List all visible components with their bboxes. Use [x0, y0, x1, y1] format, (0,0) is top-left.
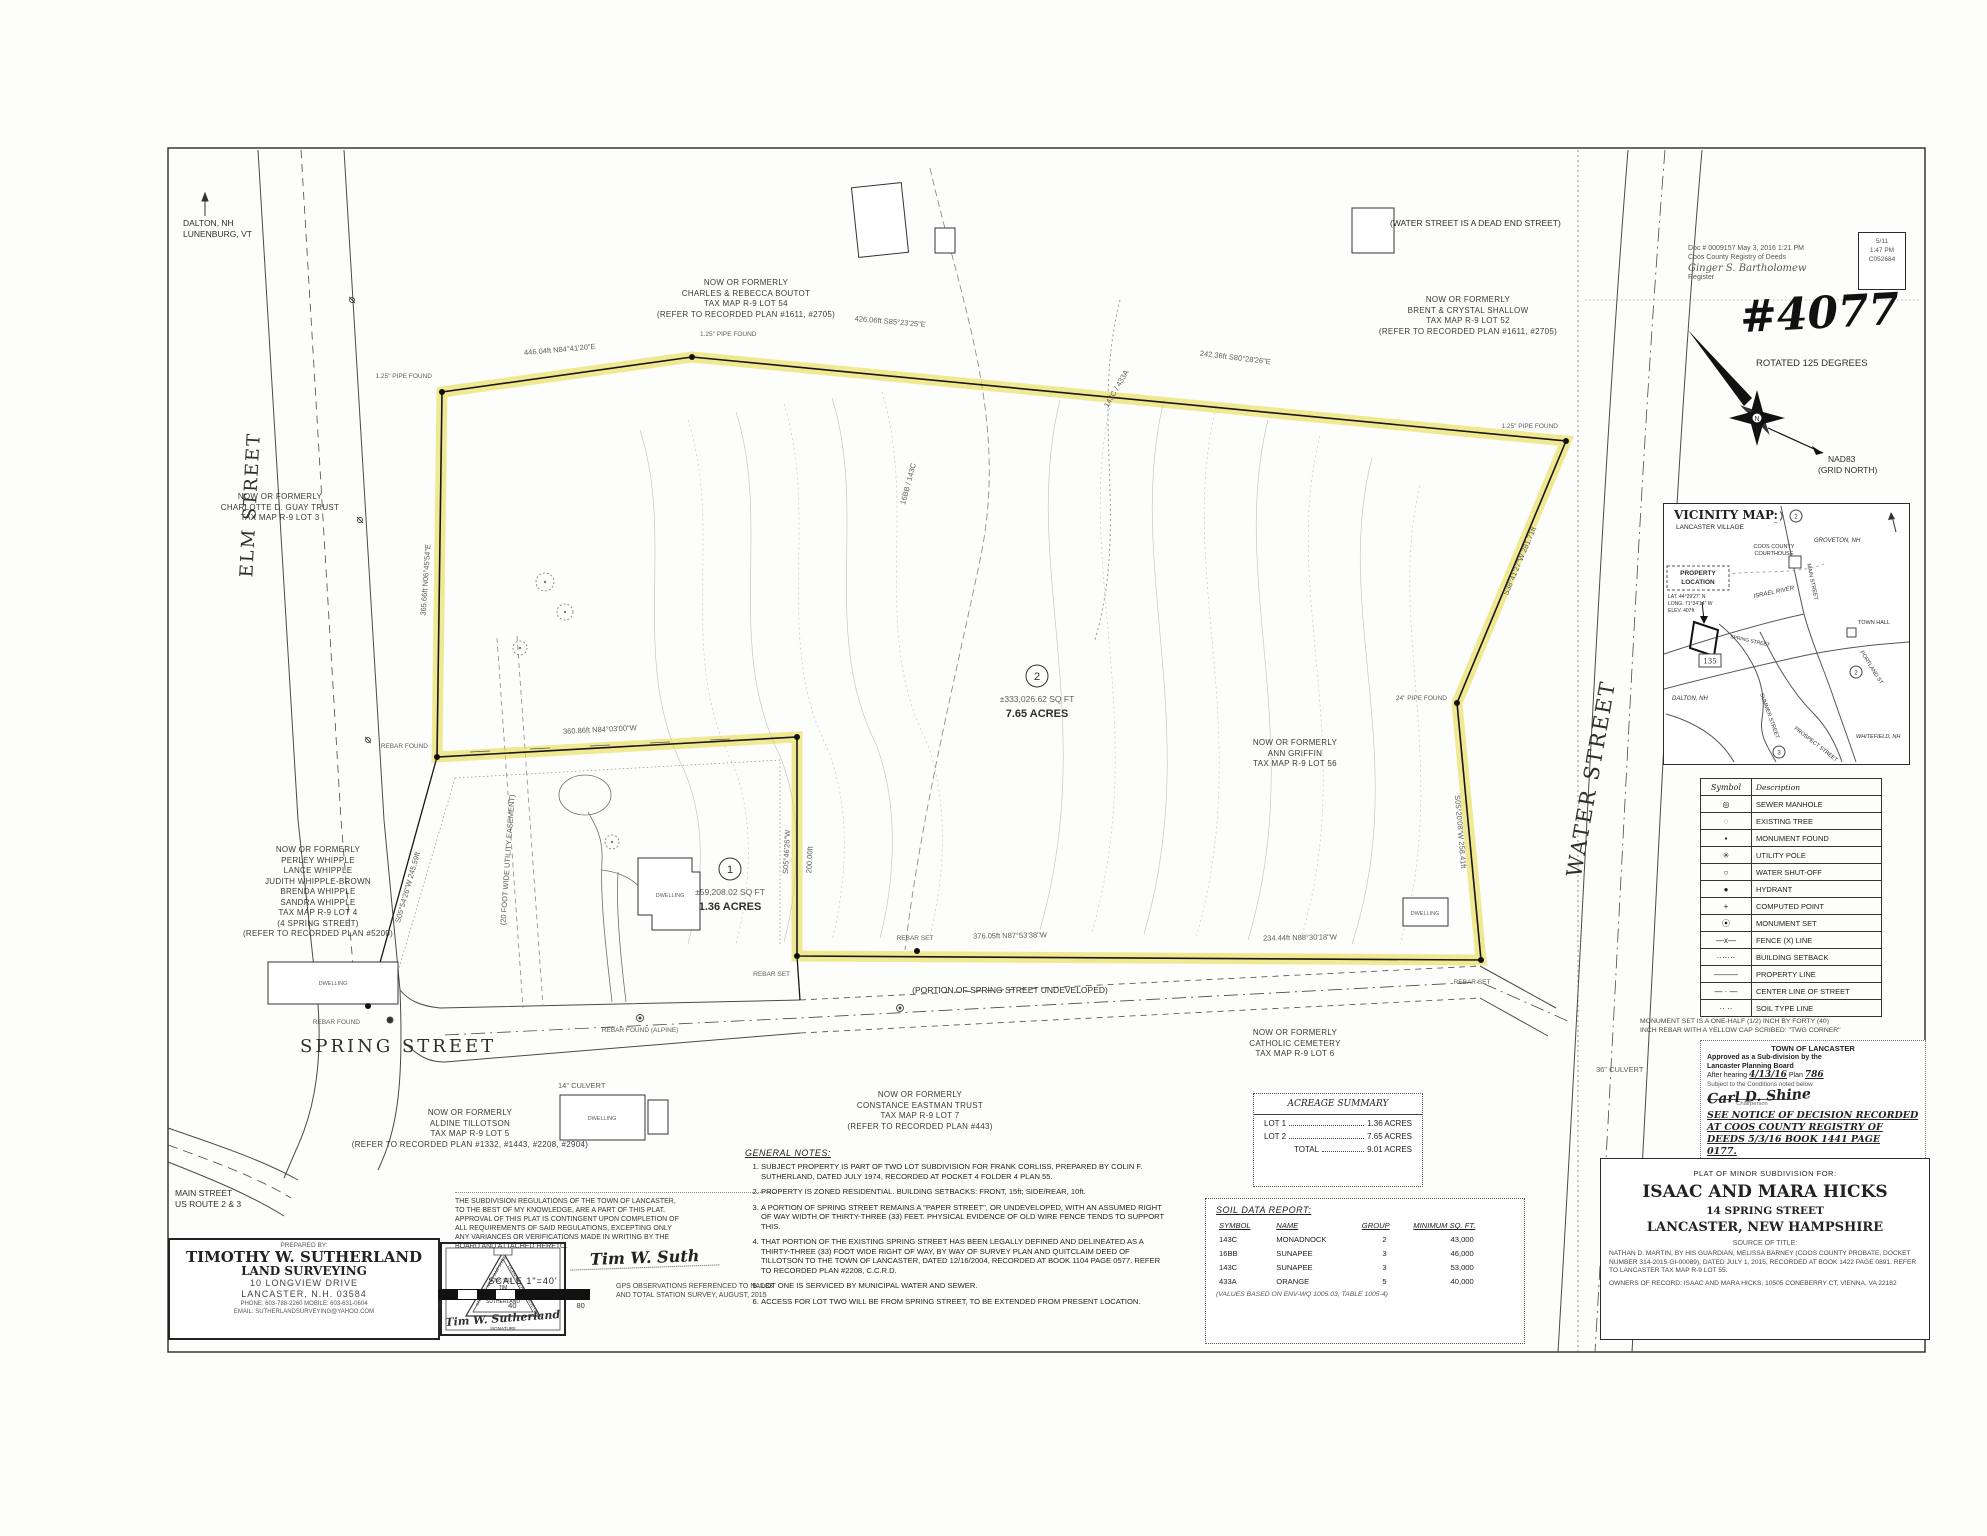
soil-row: 16BBSUNAPEE346,000: [1216, 1246, 1514, 1260]
stamp-registry-line: Coos County Registry of Deeds: [1688, 253, 1858, 262]
text-line: NOW OR FORMERLY: [1195, 1028, 1395, 1039]
sheet-number: #4077: [1739, 284, 1901, 343]
legend-description: FENCE (X) LINE: [1752, 932, 1882, 949]
text-line: TAX MAP R-9 LOT 7: [800, 1111, 1040, 1122]
main-street-label-2: US ROUTE 2 & 3: [175, 1199, 241, 1209]
title-town: LANCASTER, NEW HAMPSHIRE: [1609, 1220, 1921, 1235]
legend-row: ———PROPERTY LINE: [1701, 966, 1882, 983]
soil-report: SOIL DATA REPORT: SYMBOLNAMEGROUPMINIMUM…: [1205, 1198, 1525, 1344]
soil-cell: 2: [1359, 1232, 1411, 1246]
legend-symbol: ●: [1701, 881, 1752, 898]
text-line: (4 SPRING STREET): [218, 919, 418, 930]
stamp-box: 5/111:47 PMC052684: [1858, 232, 1906, 290]
acreage-row: LOT 27.65 ACRES: [1264, 1132, 1412, 1141]
soil-cell: 3: [1359, 1246, 1411, 1260]
soil-type-lines: [905, 168, 1120, 950]
text-line: SANDRA WHIPPLE: [218, 898, 418, 909]
surveyor-business: LAND SURVEYING: [172, 1265, 436, 1278]
svg-text:COURTHOUSE: COURTHOUSE: [1754, 551, 1793, 557]
vicinity-courthouse-label: COOS COUNTY: [1754, 544, 1795, 550]
rotation-note: ROTATED 125 DEGREES: [1756, 358, 1868, 369]
boutot-shed: [935, 228, 955, 253]
bearing-label: S05°46'26"W: [781, 829, 792, 875]
soil-header: MINIMUM SQ. FT.: [1410, 1219, 1514, 1232]
legend-header-desc: Description: [1752, 779, 1882, 796]
bearing-label: 426.06ft S85°23'25"E: [854, 314, 926, 329]
legend-row: ◎SEWER MANHOLE: [1701, 796, 1882, 813]
soil-header: NAME: [1273, 1219, 1359, 1232]
soil-cell: 53,000: [1410, 1260, 1514, 1274]
text-line: AT COOS COUNTY REGISTRY OF: [1707, 1122, 1919, 1134]
vicinity-groveton: GROVETON, NH: [1814, 538, 1861, 544]
boutot-building: [851, 183, 908, 258]
vicinity-spring-st: SPRING STREET: [1730, 634, 1771, 648]
parcel-label-boutot: NOW OR FORMERLYCHARLES & REBECCA BOUTOTT…: [630, 278, 862, 320]
text-line: CHARLES & REBECCA BOUTOT: [630, 289, 862, 300]
text-line: TAX MAP R-9 LOT 54: [630, 299, 862, 310]
svg-text:135: 135: [1703, 658, 1716, 666]
vicinity-subtitle: LANCASTER VILLAGE: [1674, 524, 1746, 531]
svg-text:1.36 ACRES: 1.36 ACRES: [699, 901, 762, 913]
soil-cell: 5: [1359, 1274, 1411, 1288]
vicinity-property-label: PROPERTY: [1680, 570, 1716, 577]
culvert-east-label: 36" CULVERT: [1596, 1065, 1644, 1074]
legend-symbol: ▪: [1701, 830, 1752, 847]
title-source-text: NATHAN D. MARTIN, BY HIS GUARDIAN, MELIS…: [1609, 1250, 1921, 1276]
soil-header: GROUP: [1359, 1219, 1411, 1232]
vicinity-town-hall-label: TOWN HALL: [1858, 620, 1890, 626]
text-line: ANN GRIFFIN: [1195, 749, 1395, 760]
lunenburg-label: LUNENBURG, VT: [183, 229, 252, 239]
water-street-label: WATER STREET: [1562, 679, 1620, 879]
parcel-label-shallow: NOW OR FORMERLYBRENT & CRYSTAL SHALLOWTA…: [1352, 295, 1584, 337]
text-line: PERLEY WHIPPLE: [218, 856, 418, 867]
soil-cell: SUNAPEE: [1273, 1246, 1359, 1260]
text-line: TAX MAP R-9 LOT 5: [300, 1129, 640, 1140]
monument-note-line1: MONUMENT SET IS A ONE-HALF (1/2) INCH BY…: [1640, 1018, 1920, 1027]
approval-town: TOWN OF LANCASTER: [1707, 1044, 1919, 1053]
text-line: NOW OR FORMERLY: [180, 492, 380, 503]
utility-symbols: [349, 297, 904, 1023]
stamp-signature: Ginger S. Bartholomew: [1688, 264, 1858, 273]
bearing-label: 446.04ft N84°41'20"E: [524, 342, 596, 357]
legend-description: UTILITY POLE: [1752, 847, 1882, 864]
parcel-label-whipple: NOW OR FORMERLYPERLEY WHIPPLELANCE WHIPP…: [218, 845, 418, 940]
contour-lines: [640, 392, 1421, 944]
bearing-label: 234.44ft N88°30'18"W: [1263, 932, 1338, 942]
nad83-label: NAD83: [1828, 454, 1856, 464]
text-line: TAX MAP R-9 LOT 4: [218, 908, 418, 919]
acreage-title: ACREAGE SUMMARY: [1254, 1094, 1422, 1115]
text-line: BRENDA WHIPPLE: [218, 887, 418, 898]
recording-stamp: Doc # 0009157 May 3, 2016 1:21 PM Coos C…: [1688, 244, 1858, 282]
soil-report-title: SOIL DATA REPORT:: [1216, 1205, 1514, 1215]
general-notes: GENERAL NOTES: SUBJECT PROPERTY IS PART …: [745, 1148, 1165, 1312]
legend-description: EXISTING TREE: [1752, 813, 1882, 830]
text-line: 5/11: [1859, 237, 1905, 246]
legend-description: MONUMENT FOUND: [1752, 830, 1882, 847]
soil-footnote: (VALUES BASED ON ENV-WQ 1005.03, TABLE 1…: [1216, 1291, 1514, 1298]
legend-symbol: — · —: [1701, 983, 1752, 1000]
legend-row: ·· ··SOIL TYPE LINE: [1701, 1000, 1882, 1017]
svg-text:2: 2: [1034, 671, 1040, 683]
soil-cell: 40,000: [1410, 1274, 1514, 1288]
parcel-label-cemetery: NOW OR FORMERLYCATHOLIC CEMETERYTAX MAP …: [1195, 1028, 1395, 1060]
parcel-label-griffin: NOW OR FORMERLYANN GRIFFINTAX MAP R-9 LO…: [1195, 738, 1395, 770]
monument-markers: [365, 354, 1569, 1009]
legend-description: COMPUTED POINT: [1752, 898, 1882, 915]
vicinity-prospect: PROSPECT STREET: [1793, 726, 1839, 764]
plat-sheet: N ELM STREET WATER STREET SPRING STREET …: [0, 0, 1987, 1536]
easement-label: (20 FOOT WIDE UTILITY EASEMENT): [498, 794, 516, 926]
svg-text:±59,208.02 SQ FT: ±59,208.02 SQ FT: [695, 887, 765, 897]
surveyor-address-1: 10 LONGVIEW DRIVE: [172, 1278, 436, 1289]
bearing-label: 365.66ft N06°45'54"E: [419, 544, 433, 616]
vicinity-river-label: ISRAEL RIVER: [1753, 585, 1795, 600]
approval-handwritten-note: SEE NOTICE OF DECISION RECORDEDAT COOS C…: [1707, 1110, 1919, 1158]
vicinity-main-street: MAIN STREET: [1805, 563, 1819, 601]
approval-hearing-date: 4/13/16: [1749, 1070, 1787, 1080]
acreage-cell: 7.65 ACRES: [1367, 1132, 1412, 1141]
monument-label-mid: REBAR FOUND (ALPINE): [602, 1027, 679, 1034]
legend-symbol: ·· ··: [1701, 1000, 1752, 1017]
vicinity-map: PROPERTY LOCATION LAT. 44°29'27" N LONG.…: [1663, 503, 1910, 765]
parcel-label-guay: NOW OR FORMERLYCHARLOTTE D. GUAY TRUSTTA…: [180, 492, 380, 524]
text-line: NOW OR FORMERLY: [630, 278, 862, 289]
title-address: 14 SPRING STREET: [1609, 1205, 1921, 1217]
soil-cell: 3: [1359, 1260, 1411, 1274]
approval-hearing-line: After hearing 4/13/16 Plan 786: [1707, 1071, 1919, 1080]
vicinity-courthouse: [1789, 556, 1801, 568]
text-line: TO THE BEST OF MY KNOWLEDGE, ARE A PART …: [455, 1206, 775, 1215]
legend-symbol: —x—: [1701, 932, 1752, 949]
dead-end-note: (WATER STREET IS A DEAD END STREET): [1390, 218, 1561, 228]
general-notes-list: SUBJECT PROPERTY IS PART OF TWO LOT SUBD…: [745, 1162, 1165, 1306]
surveyor-phone: PHONE: 603-788-2260 MOBILE: 603-631-0604: [172, 1300, 436, 1308]
soil-row: 143CSUNAPEE353,000: [1216, 1260, 1514, 1274]
text-line: SEE NOTICE OF DECISION RECORDED: [1707, 1110, 1919, 1122]
dwelling-label: DWELLING: [656, 893, 685, 899]
certification-block: THE SUBDIVISION REGULATIONS OF THE TOWN …: [455, 1192, 775, 1251]
text-line: TAX MAP R-9 LOT 52: [1352, 316, 1584, 327]
text-line: ANY VARIANCES OR VERIFICATIONS MADE IN W…: [455, 1233, 775, 1242]
legend-row: ▪MONUMENT FOUND: [1701, 830, 1882, 847]
driveway: [559, 775, 640, 1002]
legend: Symbol Description ◎SEWER MANHOLE◌EXISTI…: [1700, 778, 1882, 1017]
surveyor-name: TIMOTHY W. SUTHERLAND: [172, 1249, 436, 1265]
bearing-label: 242.36ft S80°28'26"E: [1199, 349, 1271, 367]
tillotson-shed: [648, 1100, 668, 1134]
title-owner-name: ISAAC AND MARA HICKS: [1609, 1182, 1921, 1202]
soil-header: SYMBOL: [1216, 1219, 1273, 1232]
state-line-arrow: [202, 193, 208, 216]
legend-symbol: +: [1701, 898, 1752, 915]
monument-label-i: REBAR FOUND: [381, 743, 429, 750]
title-kicker: PLAT OF MINOR SUBDIVISION FOR:: [1609, 1169, 1921, 1178]
legend-description: HYDRANT: [1752, 881, 1882, 898]
legend-symbol: ———: [1701, 966, 1752, 983]
text-line: C052684: [1859, 255, 1905, 264]
text-line: NOW OR FORMERLY: [1195, 738, 1395, 749]
approval-block: TOWN OF LANCASTER Approved as a Sub-divi…: [1700, 1040, 1926, 1166]
utility-easement-lines: [497, 636, 543, 1008]
soil-cell: 143C: [1216, 1232, 1273, 1246]
vicinity-property-polygon: [1690, 622, 1718, 656]
text-line: THE SUBDIVISION REGULATIONS OF THE TOWN …: [455, 1197, 775, 1206]
scale-label: SCALE 1"=40': [438, 1276, 608, 1286]
bearing-label: 360.86ft N84°03'00"W: [563, 723, 638, 736]
text-line: LANCE WHIPPLE: [218, 866, 418, 877]
legend-description: PROPERTY LINE: [1752, 966, 1882, 983]
general-note-item: PROPERTY IS ZONED RESIDENTIAL. BUILDING …: [761, 1187, 1165, 1197]
soil-label-1: 16BB / 143C: [898, 462, 918, 506]
culvert-west-label: 14" CULVERT: [558, 1081, 606, 1090]
monument-label-b: 1.25" PIPE FOUND: [700, 331, 757, 338]
vicinity-lat: LAT. 44°29'27" N: [1668, 594, 1706, 600]
text-line: NOW OR FORMERLY: [218, 845, 418, 856]
vicinity-title: VICINITY MAP:: [1672, 508, 1780, 522]
soil-cell: 143C: [1216, 1260, 1273, 1274]
text-line: 1:47 PM: [1859, 246, 1905, 255]
text-line: ALL REQUIREMENTS OF SAID REGULATIONS, EX…: [455, 1224, 775, 1233]
legend-row: ·······BUILDING SETBACK: [1701, 949, 1882, 966]
text-line: TAX MAP R-9 LOT 6: [1195, 1049, 1395, 1060]
legend-header-symbol: Symbol: [1701, 779, 1752, 796]
text-line: DEEDS 5/3/16 BOOK 1441 PAGE: [1707, 1134, 1919, 1146]
acreage-total-row: TOTAL 9.01 ACRES: [1294, 1145, 1412, 1154]
lot2-boundary-highlight: [437, 357, 1566, 960]
soil-table: SYMBOLNAMEGROUPMINIMUM SQ. FT. 143CMONAD…: [1216, 1219, 1514, 1288]
parcel-label-tillotson: NOW OR FORMERLYALDINE TILLOTSONTAX MAP R…: [300, 1108, 640, 1150]
legend-table: Symbol Description ◎SEWER MANHOLE◌EXISTI…: [1700, 778, 1882, 1017]
legend-symbol: ◌: [1701, 813, 1752, 830]
tree-centers: [519, 581, 613, 843]
svg-text:7.65 ACRES: 7.65 ACRES: [1006, 708, 1069, 720]
monument-label-d: 24" PIPE FOUND: [1396, 695, 1447, 702]
compass-star: N: [1729, 390, 1785, 446]
text-line: (REFER TO RECORDED PLAN #5200): [218, 929, 418, 940]
text-line: (REFER TO RECORDED PLAN #443): [800, 1122, 1040, 1133]
soil-cell: ORANGE: [1273, 1274, 1359, 1288]
text-line: NOW OR FORMERLY: [300, 1108, 640, 1119]
text-line: (REFER TO RECORDED PLAN #1332, #1443, #2…: [300, 1140, 640, 1151]
legend-description: MONUMENT SET: [1752, 915, 1882, 932]
monument-label-a: 1.25" PIPE FOUND: [376, 373, 433, 380]
monument-label-g: REBAR SET: [753, 971, 790, 978]
vicinity-whitefield: WHITEFIELD, NH: [1856, 734, 1900, 740]
legend-symbol: ◎: [1701, 796, 1752, 813]
legend-description: SOIL TYPE LINE: [1752, 1000, 1882, 1017]
monument-label-f: REBAR SET: [897, 935, 934, 942]
shallow-building: [1352, 208, 1394, 253]
legend-symbol: ✳: [1701, 847, 1752, 864]
vicinity-elev: ELEV. 407ft: [1668, 608, 1695, 614]
acreage-cell: [1289, 1125, 1364, 1126]
monument-label-j: REBAR FOUND: [313, 1019, 361, 1026]
seal-signature-label: SIGNATURE: [490, 1326, 516, 1331]
lot1-label: 1 ±59,208.02 SQ FT 1.36 ACRES: [695, 858, 765, 913]
stamp-register-line: Register: [1688, 273, 1858, 282]
text-line: TAX MAP R-9 LOT 56: [1195, 759, 1395, 770]
vicinity-portland: PORTLAND ST: [1858, 650, 1884, 686]
acreage-row: LOT 11.36 ACRES: [1264, 1119, 1412, 1128]
svg-text:1: 1: [727, 864, 733, 876]
svg-text:N: N: [1754, 416, 1759, 423]
legend-description: SEWER MANHOLE: [1752, 796, 1882, 813]
general-note-item: A PORTION OF SPRING STREET REMAINS A "PA…: [761, 1203, 1165, 1232]
text-line: 0177.: [1707, 1146, 1919, 1158]
acreage-rows: LOT 11.36 ACRESLOT 27.65 ACRES: [1254, 1119, 1422, 1141]
monument-label-e: REBAR SET: [1454, 979, 1491, 986]
spring-street-label: SPRING STREET: [300, 1036, 496, 1057]
legend-symbol: ○: [1701, 864, 1752, 881]
vicinity-town-hall: [1847, 628, 1856, 637]
general-note-item: THAT PORTION OF THE EXISTING SPRING STRE…: [761, 1237, 1165, 1275]
buildings: [268, 183, 1448, 1140]
approval-line1: Approved as a Sub-division by the: [1707, 1053, 1919, 1062]
prepared-by-block: PREPARED BY: TIMOTHY W. SUTHERLAND LAND …: [168, 1238, 440, 1340]
hydrant: [387, 1017, 393, 1023]
soil-cell: 43,000: [1410, 1232, 1514, 1246]
text-line: JUDITH WHIPPLE-BROWN: [218, 877, 418, 888]
text-line: APPROVAL OF THIS PLAT IS CONTINGENT UPON…: [455, 1215, 775, 1224]
general-note-item: SUBJECT PROPERTY IS PART OF TWO LOT SUBD…: [761, 1162, 1165, 1181]
spring-undeveloped-note: (PORTION OF SPRING STREET UNDEVELOPED): [912, 985, 1108, 995]
text-line: (REFER TO RECORDED PLAN #1611, #2705): [630, 310, 862, 321]
soil-cell: 16BB: [1216, 1246, 1273, 1260]
approval-plan-number: 786: [1805, 1070, 1824, 1080]
surveyor-address-2: LANCASTER, N.H. 03584: [172, 1289, 436, 1300]
text-line: CONSTANCE EASTMAN TRUST: [800, 1101, 1040, 1112]
legend-row: ○WATER SHUT-OFF: [1701, 864, 1882, 881]
acreage-cell: [1289, 1138, 1364, 1139]
text-line: (REFER TO RECORDED PLAN #1611, #2705): [1352, 327, 1584, 338]
soil-cell: 433A: [1216, 1274, 1273, 1288]
stamp-doc-line: Doc # 0009157 May 3, 2016 1:21 PM: [1688, 244, 1858, 253]
parcel-label-eastman: NOW OR FORMERLYCONSTANCE EASTMAN TRUSTTA…: [800, 1090, 1040, 1132]
text-line: ALDINE TILLOTSON: [300, 1119, 640, 1130]
legend-row: —x—FENCE (X) LINE: [1701, 932, 1882, 949]
soil-cell: SUNAPEE: [1273, 1260, 1359, 1274]
acreage-cell: LOT 2: [1264, 1132, 1286, 1141]
legend-symbol: ·······: [1701, 949, 1752, 966]
text-line: TAX MAP R-9 LOT 3: [180, 513, 380, 524]
lot2-boundary-line: [437, 357, 1566, 960]
monument-note: MONUMENT SET IS A ONE-HALF (1/2) INCH BY…: [1640, 1018, 1920, 1035]
monument-note-line2: INCH REBAR WITH A YELLOW CAP SCRIBED: "T…: [1640, 1027, 1920, 1036]
north-arrow: N: [1688, 330, 1823, 455]
legend-row: ✳UTILITY POLE: [1701, 847, 1882, 864]
vicinity-dalton: DALTON, NH: [1672, 696, 1708, 702]
monument-label-c: 1.25" PIPE FOUND: [1502, 423, 1559, 430]
text-line: CHARLOTTE D. GUAY TRUST: [180, 503, 380, 514]
legend-row: +COMPUTED POINT: [1701, 898, 1882, 915]
text-line: BRENT & CRYSTAL SHALLOW: [1352, 306, 1584, 317]
legend-description: CENTER LINE OF STREET: [1752, 983, 1882, 1000]
legend-row: ●HYDRANT: [1701, 881, 1882, 898]
grid-north-label: (GRID NORTH): [1818, 465, 1878, 475]
dalton-label: DALTON, NH: [183, 218, 234, 228]
main-street-label-1: MAIN STREET: [175, 1188, 232, 1198]
lot2-label: 2 ±333,026.62 SQ FT 7.65 ACRES: [1000, 665, 1075, 720]
svg-text:LOCATION: LOCATION: [1681, 579, 1715, 586]
bearing-label: 200.00ft: [804, 845, 814, 873]
text-line: NOW OR FORMERLY: [800, 1090, 1040, 1101]
title-owners-text: OWNERS OF RECORD: ISAAC AND MARA HICKS, …: [1609, 1280, 1921, 1289]
soil-cell: MONADNOCK: [1273, 1232, 1359, 1246]
vicinity-summer: SUMMER STREET: [1758, 693, 1780, 740]
acreage-summary: ACREAGE SUMMARY LOT 11.36 ACRESLOT 27.65…: [1253, 1093, 1423, 1187]
legend-description: BUILDING SETBACK: [1752, 949, 1882, 966]
title-source-label: SOURCE OF TITLE:: [1609, 1240, 1921, 1247]
text-line: NOW OR FORMERLY: [1352, 295, 1584, 306]
legend-row: ◌EXISTING TREE: [1701, 813, 1882, 830]
general-notes-title: GENERAL NOTES:: [745, 1148, 1165, 1158]
general-note-item: ACCESS FOR LOT TWO WILL BE FROM SPRING S…: [761, 1297, 1165, 1307]
scale-block: SCALE 1"=40' 0 40 80: [438, 1276, 608, 1310]
legend-row: — · —CENTER LINE OF STREET: [1701, 983, 1882, 1000]
svg-text:±333,026.62 SQ FT: ±333,026.62 SQ FT: [1000, 694, 1075, 704]
lot1-boundary-lines: [368, 757, 800, 1006]
vicinity-north-arrow: [1888, 512, 1895, 520]
soil-row: 433AORANGE540,000: [1216, 1274, 1514, 1288]
general-note-item: LOT ONE IS SERVICED BY MUNICIPAL WATER A…: [761, 1281, 1165, 1291]
title-block: PLAT OF MINOR SUBDIVISION FOR: ISAAC AND…: [1600, 1158, 1930, 1340]
legend-symbol: ⦿: [1701, 915, 1752, 932]
bearing-label: S38°41'27"W 281.71ft: [1501, 525, 1538, 597]
soil-cell: 46,000: [1410, 1246, 1514, 1260]
acreage-cell: LOT 1: [1264, 1119, 1286, 1128]
dwelling-label: DWELLING: [319, 981, 348, 987]
soil-row: 143CMONADNOCK243,000: [1216, 1232, 1514, 1246]
legend-row: ⦿MONUMENT SET: [1701, 915, 1882, 932]
surveyor-email: EMAIL: SUTHERLANDSURVEYING@YAHOO.COM: [172, 1308, 436, 1316]
bearing-label: 376.05ft N87°53'38"W: [973, 930, 1048, 940]
legend-description: WATER SHUT-OFF: [1752, 864, 1882, 881]
vicinity-long: LONG. 71°34'14" W: [1668, 601, 1713, 607]
text-line: CATHOLIC CEMETERY: [1195, 1039, 1395, 1050]
dwelling-label: DWELLING: [1411, 911, 1440, 917]
scale-bar: [438, 1289, 590, 1300]
acreage-cell: 1.36 ACRES: [1367, 1119, 1412, 1128]
